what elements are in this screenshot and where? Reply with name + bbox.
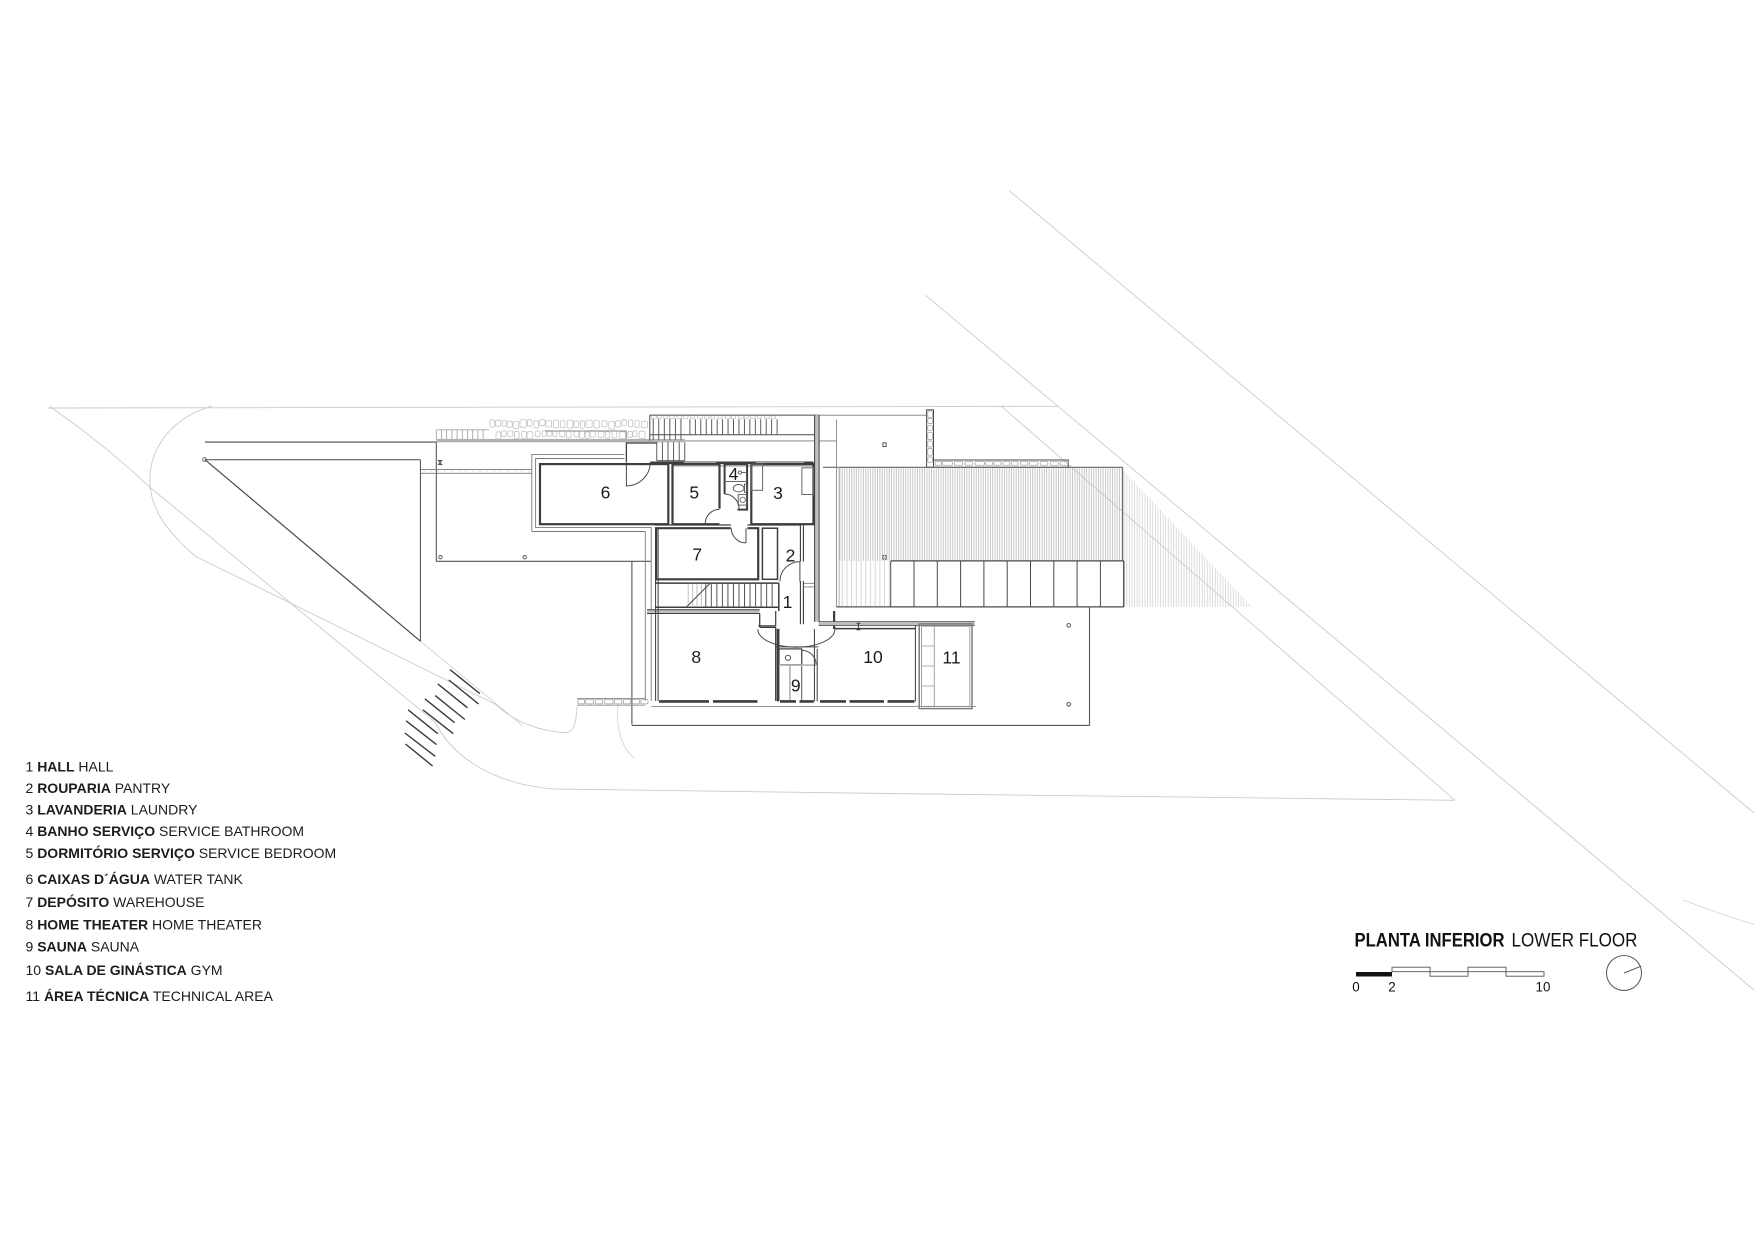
svg-text:7: 7: [692, 545, 702, 565]
svg-text:2: 2: [786, 546, 796, 566]
svg-text:9 SAUNA SAUNA: 9 SAUNA SAUNA: [26, 939, 140, 955]
svg-text:7 DEPÓSITO WAREHOUSE: 7 DEPÓSITO WAREHOUSE: [26, 893, 205, 910]
svg-text:3 LAVANDERIA LAUNDRY: 3 LAVANDERIA LAUNDRY: [26, 802, 199, 818]
svg-text:5: 5: [689, 483, 699, 503]
svg-text:3: 3: [773, 483, 783, 503]
svg-text:2 ROUPARIA PANTRY: 2 ROUPARIA PANTRY: [26, 780, 171, 796]
svg-text:9: 9: [791, 676, 801, 696]
svg-text:10 SALA DE GINÁSTICA GYM: 10 SALA DE GINÁSTICA GYM: [26, 962, 223, 978]
svg-text:0: 0: [1352, 980, 1359, 995]
svg-text:5 DORMITÓRIO SERVIÇO SERVICE B: 5 DORMITÓRIO SERVIÇO SERVICE BEDROOM: [26, 844, 337, 861]
svg-text:4 BANHO SERVIÇO SERVICE BATHRO: 4 BANHO SERVIÇO SERVICE BATHROOM: [26, 823, 305, 839]
svg-text:PLANTA INFERIOR: PLANTA INFERIOR: [1355, 931, 1505, 952]
svg-text:2: 2: [1388, 980, 1395, 995]
svg-text:8 HOME THEATER HOME THEATER: 8 HOME THEATER HOME THEATER: [26, 917, 262, 933]
svg-text:6 CAIXAS D´ÁGUA WATER TANK: 6 CAIXAS D´ÁGUA WATER TANK: [26, 871, 244, 887]
svg-text:6: 6: [601, 483, 611, 503]
svg-text:11 ÁREA TÉCNICA TECHNICAL AREA: 11 ÁREA TÉCNICA TECHNICAL AREA: [26, 988, 274, 1004]
svg-text:LOWER FLOOR: LOWER FLOOR: [1512, 931, 1638, 952]
svg-text:8: 8: [691, 647, 701, 667]
svg-text:10: 10: [1536, 980, 1551, 995]
svg-text:4: 4: [729, 464, 739, 484]
svg-text:11: 11: [942, 648, 960, 668]
svg-text:1 HALL HALL: 1 HALL HALL: [26, 759, 114, 775]
svg-text:10: 10: [863, 647, 883, 667]
svg-text:1: 1: [783, 592, 793, 612]
